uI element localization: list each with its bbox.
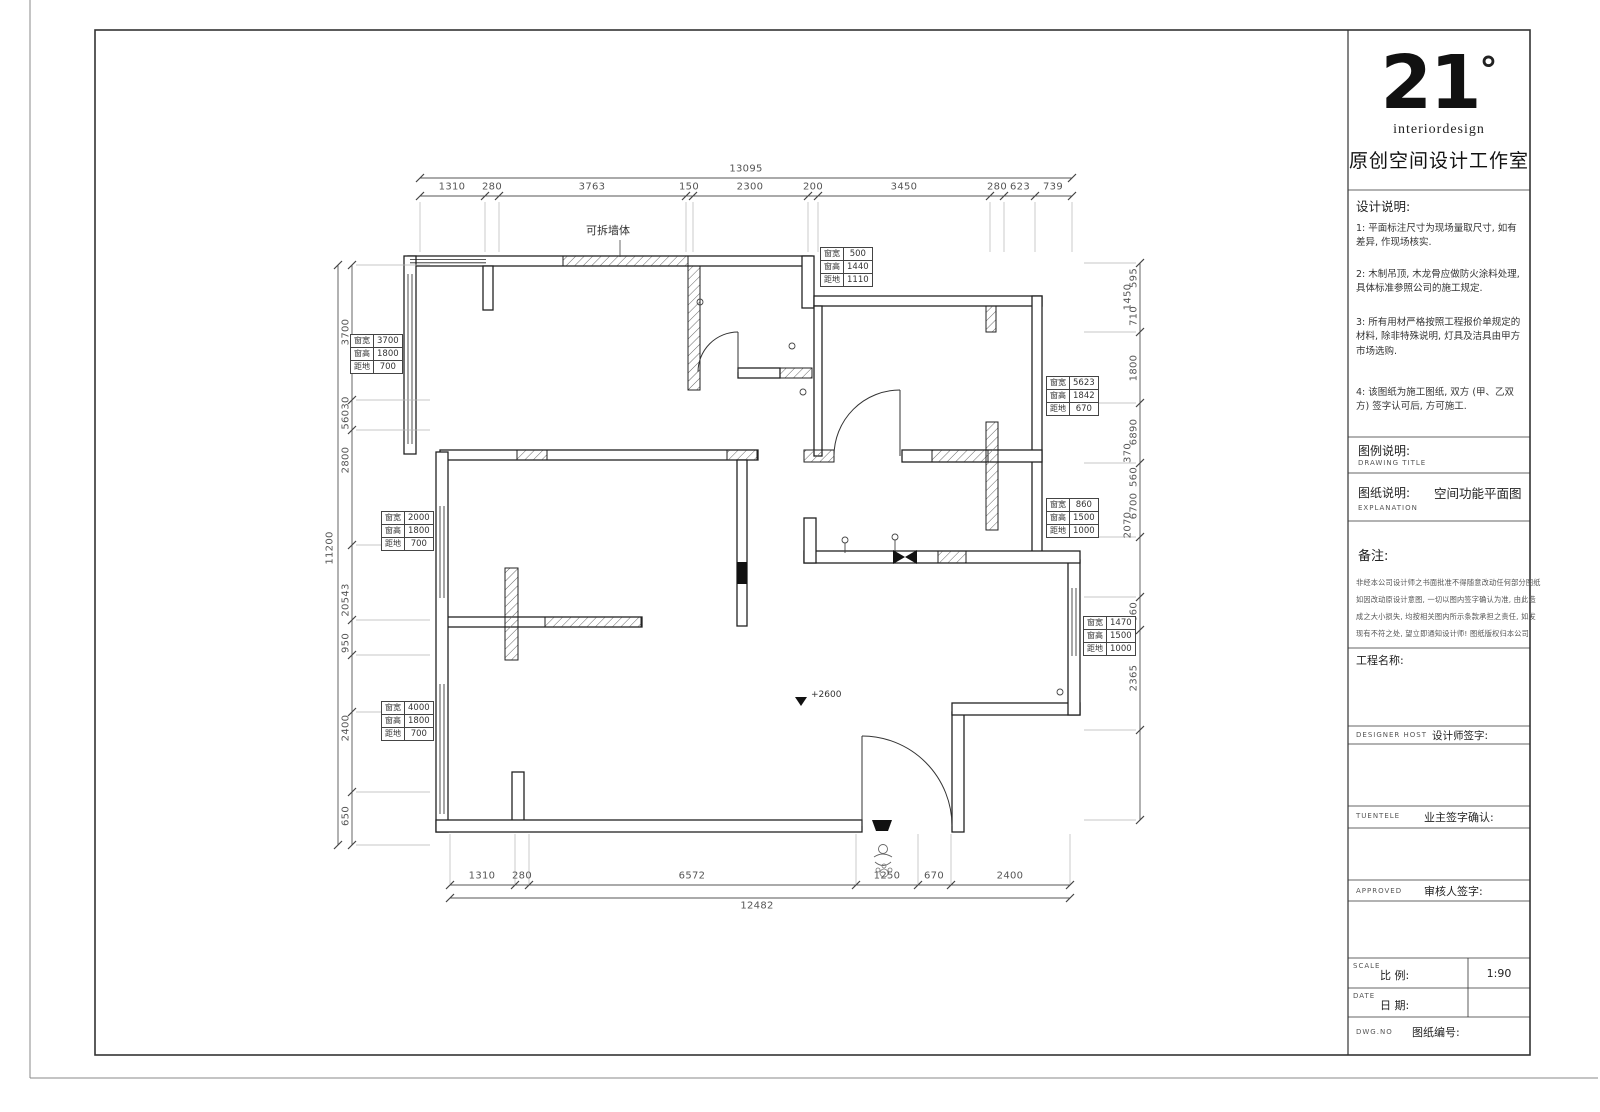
logo-subtitle: interiordesign <box>1348 122 1530 138</box>
dim-left-seg: 2800 <box>341 447 352 474</box>
dim-right-seg: 6890 <box>1129 419 1140 446</box>
dim-top-seg: 150 <box>679 182 699 193</box>
dim-right-seg: 710 <box>1129 306 1140 326</box>
dim-right-seg: 370 <box>1123 443 1134 463</box>
remarks-line: 成之大小损失, 均按相关图内所示条款承担之责任, 如发 <box>1356 612 1536 622</box>
project-name-label: 工程名称: <box>1356 652 1404 668</box>
design-note-1: 1: 平面标注尺寸为现场量取尺寸, 如有差异, 作现场核实. <box>1356 222 1524 251</box>
design-note-3: 3: 所有用材严格按照工程报价单规定的材料, 除非特殊说明, 灯具及洁具由甲方市… <box>1356 316 1524 359</box>
dim-left-seg: 56030 <box>341 396 352 429</box>
approved-signature-label: 审核人签字: <box>1424 883 1483 899</box>
dim-top-total: 13095 <box>729 164 762 175</box>
dim-bottom-seg: 1310 <box>469 871 496 882</box>
dim-top-seg: 623 <box>1010 182 1030 193</box>
date-label: 日 期: <box>1380 997 1409 1013</box>
dim-left-seg: 20543 <box>341 583 352 616</box>
dim-bottom-seg: 670 <box>924 871 944 882</box>
dim-top-seg: 200 <box>803 182 823 193</box>
remarks-line: 如因改动原设计意图, 一切以图内签字确认为准, 由此造 <box>1356 595 1536 605</box>
designer-signature-label: 设计师签字: <box>1432 728 1488 743</box>
sheet-label: 图纸说明: <box>1358 484 1410 501</box>
dwg-no-label-en: DWG.NO <box>1356 1028 1393 1036</box>
logo-studio-name: 原创空间设计工作室 <box>1348 146 1530 173</box>
scale-value: 1:90 <box>1468 967 1530 980</box>
dim-right-seg: 560 <box>1129 467 1140 487</box>
legend-label-en: DRAWING TITLE <box>1358 459 1426 467</box>
design-notes-title: 设计说明: <box>1356 196 1410 215</box>
scale-label-en: SCALE <box>1353 962 1380 970</box>
dim-bottom-seg: 280 <box>512 871 532 882</box>
window-spec-table-top-right: 窗宽500 窗高1440 距地1110 <box>820 247 873 287</box>
level-marker-label: +2600 <box>811 690 841 700</box>
dim-bottom-total: 12482 <box>740 901 773 912</box>
logo-number: 21 <box>1381 40 1480 126</box>
window-spec-table-left-bottom: 窗宽4000 窗高1800 距地700 <box>381 701 434 741</box>
logo-degree: ° <box>1479 50 1497 91</box>
dim-right-seg: 2365 <box>1129 665 1140 692</box>
dim-top-seg: 280 <box>482 182 502 193</box>
entrance-figure-icon <box>872 820 892 877</box>
dim-top-seg: 2300 <box>737 182 764 193</box>
dim-top-seg: 280 <box>987 182 1007 193</box>
cad-sheet: { "title_block": { "logo": { "number": "… <box>0 0 1600 1112</box>
sheet-label-en: EXPLANATION <box>1358 504 1418 512</box>
scale-label: 比 例: <box>1380 967 1409 983</box>
remarks-line: 非经本公司设计师之书面批准不得随意改动任何部分图纸 <box>1356 578 1541 588</box>
dim-bottom-seg: 1250 <box>874 871 901 882</box>
approved-label-en: APPROVED <box>1356 887 1402 895</box>
dim-left-seg: 950 <box>341 633 352 653</box>
logo: 21° <box>1348 46 1530 120</box>
dim-left-seg: 2400 <box>341 715 352 742</box>
client-label-en: TUENTELE <box>1356 812 1400 820</box>
sheet-title-value: 空间功能平面图 <box>1434 483 1522 502</box>
design-note-2: 2: 木制吊顶, 木龙骨应做防火涂料处理, 具体标准参照公司的施工规定. <box>1356 268 1524 297</box>
dim-top-seg: 1310 <box>439 182 466 193</box>
window-spec-table-left-mid: 窗宽2000 窗高1800 距地700 <box>381 511 434 551</box>
dim-left-total: 11200 <box>325 531 336 564</box>
doors-layer <box>698 332 952 826</box>
dim-bottom-seg: 6572 <box>679 871 706 882</box>
designer-label-en: DESIGNER HOST <box>1356 731 1427 739</box>
remarks-line: 现有不符之处, 望立即通知设计师! 图纸版权归本公司 <box>1356 629 1529 639</box>
walls-layer <box>404 256 1080 832</box>
date-label-en: DATE <box>1353 992 1375 1000</box>
legend-label: 图例说明: <box>1358 442 1410 459</box>
dim-right-seg: 1800 <box>1129 355 1140 382</box>
removable-wall-label: 可拆墙体 <box>586 222 630 238</box>
dwg-no-label: 图纸编号: <box>1412 1024 1460 1040</box>
level-marker-icon <box>795 697 807 706</box>
design-note-4: 4: 该图纸为施工图纸, 双方 (甲、乙双方) 签字认可后, 方可施工. <box>1356 386 1524 415</box>
window-spec-table-right-mid: 窗宽860 窗高1500 距地1000 <box>1046 498 1099 538</box>
dim-top-seg: 3450 <box>891 182 918 193</box>
dim-bottom-seg: 2400 <box>997 871 1024 882</box>
dim-right-seg: 2070 <box>1123 512 1134 539</box>
window-spec-table-left-top: 窗宽3700 窗高1800 距地700 <box>350 334 403 374</box>
dim-top-seg: 739 <box>1043 182 1063 193</box>
dim-left-seg: 650 <box>341 806 352 826</box>
window-spec-table-right-upper: 窗宽5623 窗高1842 距地670 <box>1046 376 1099 416</box>
window-spec-table-right-lower: 窗宽1470 窗高1500 距地1000 <box>1083 616 1136 656</box>
dim-top-seg: 3763 <box>579 182 606 193</box>
client-signature-label: 业主签字确认: <box>1424 809 1494 825</box>
remarks-title: 备注: <box>1358 545 1388 564</box>
